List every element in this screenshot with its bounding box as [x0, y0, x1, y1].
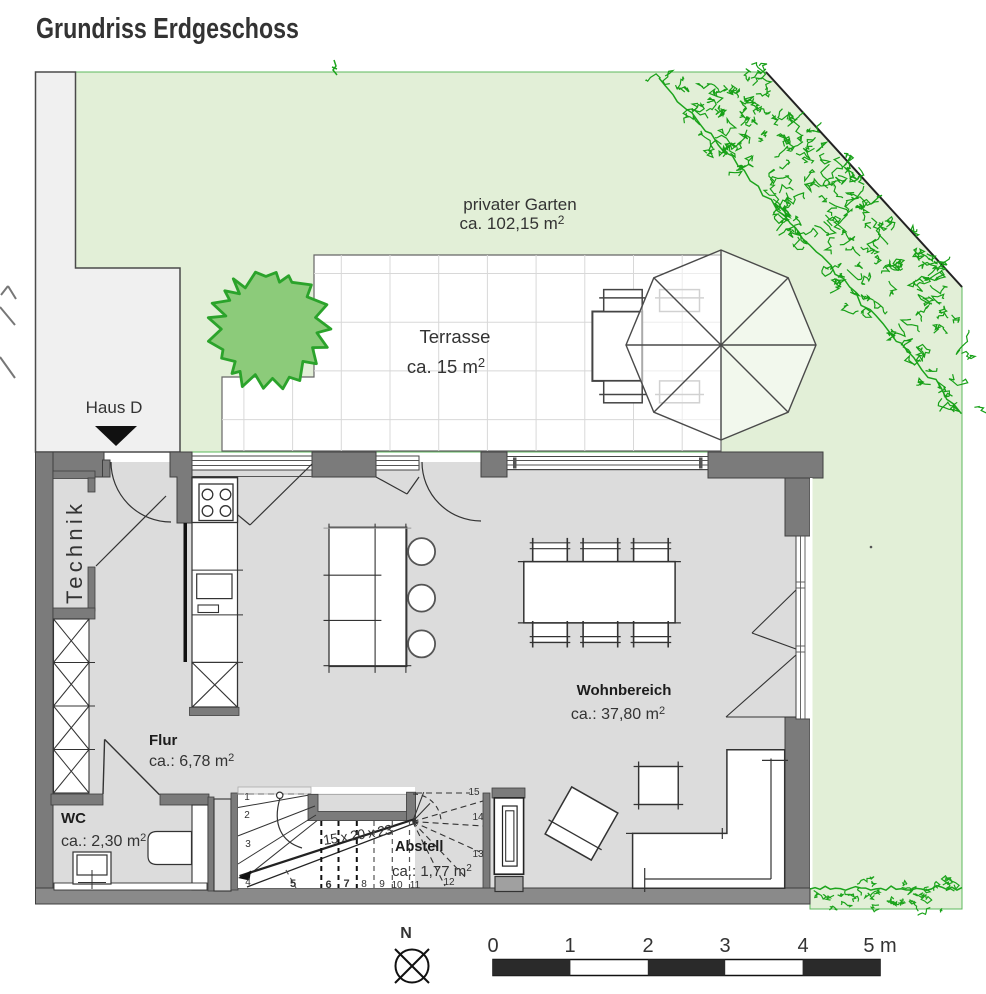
svg-text:ca.: 1,77 m2: ca.: 1,77 m2 — [392, 863, 472, 880]
svg-text:Haus D: Haus D — [86, 398, 143, 417]
svg-text:7: 7 — [343, 878, 349, 890]
svg-text:1: 1 — [244, 792, 250, 803]
svg-text:ca.: 2,30 m2: ca.: 2,30 m2 — [61, 832, 146, 850]
svg-text:9: 9 — [379, 879, 385, 890]
svg-text:4: 4 — [245, 877, 251, 888]
svg-text:15: 15 — [468, 787, 480, 798]
svg-text:8: 8 — [361, 879, 367, 890]
svg-text:WC: WC — [61, 810, 86, 827]
svg-text:Abstell: Abstell — [395, 839, 443, 855]
svg-text:2: 2 — [642, 935, 653, 957]
svg-text:5 m: 5 m — [863, 935, 896, 957]
svg-text:ca.: 37,80 m2: ca.: 37,80 m2 — [571, 705, 665, 723]
svg-text:6: 6 — [325, 879, 331, 891]
svg-text:Terrasse: Terrasse — [420, 326, 491, 347]
svg-text:14: 14 — [472, 812, 484, 823]
svg-text:privater Garten: privater Garten — [463, 195, 576, 214]
svg-text:5: 5 — [290, 878, 296, 890]
svg-text:0: 0 — [487, 935, 498, 957]
svg-text:3: 3 — [719, 935, 730, 957]
svg-text:ca. 15 m2: ca. 15 m2 — [407, 355, 485, 377]
svg-text:10: 10 — [391, 880, 403, 891]
svg-text:ca. 102,15 m2: ca. 102,15 m2 — [460, 213, 565, 233]
svg-text:1: 1 — [564, 935, 575, 957]
svg-text:Flur: Flur — [149, 732, 177, 749]
svg-text:N: N — [400, 925, 412, 942]
svg-text:4: 4 — [797, 935, 808, 957]
svg-text:ca.: 6,78 m2: ca.: 6,78 m2 — [149, 752, 234, 770]
svg-text:3: 3 — [245, 839, 251, 850]
svg-text:2: 2 — [244, 810, 250, 821]
svg-text:11: 11 — [410, 880, 421, 891]
svg-text:Grundriss Erdgeschoss: Grundriss Erdgeschoss — [36, 11, 299, 44]
svg-text:Wohnbereich: Wohnbereich — [577, 682, 672, 699]
